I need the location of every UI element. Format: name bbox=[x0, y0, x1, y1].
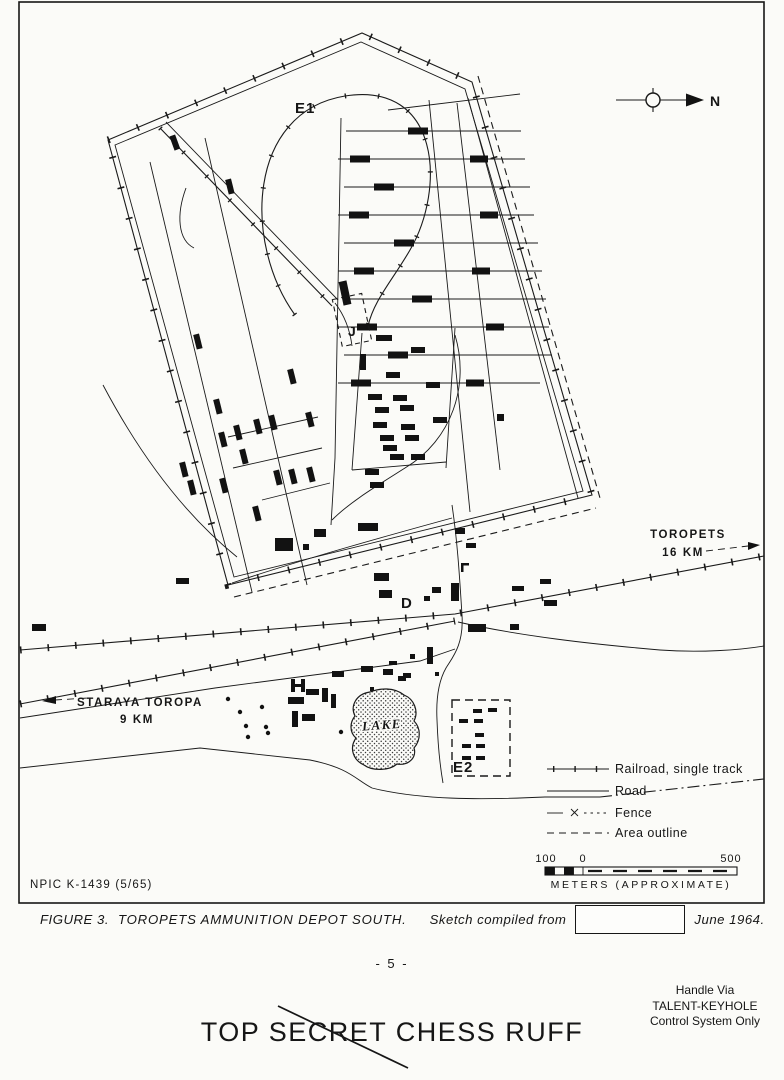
figure-date: June 1964. bbox=[694, 912, 764, 927]
direction-staraya-distance: 9 KM bbox=[120, 714, 154, 726]
area-label-d: D bbox=[401, 595, 413, 612]
area-label-e2: E2 bbox=[453, 759, 473, 776]
depot-internal-lines bbox=[103, 94, 578, 592]
legend-label-railroad: Railroad, single track bbox=[615, 762, 743, 776]
lake-label: LAKE bbox=[361, 716, 403, 734]
figure-title: TOROPETS AMMUNITION DEPOT SOUTH. bbox=[118, 912, 407, 927]
legend-fence-symbol bbox=[547, 809, 606, 816]
legend-label-road: Road bbox=[615, 784, 647, 798]
scale-units-label: METERS (APPROXIMATE) bbox=[551, 879, 732, 891]
page-number: - 5 - bbox=[348, 956, 436, 971]
north-arrow-icon bbox=[616, 88, 704, 112]
redaction-box bbox=[575, 905, 685, 934]
north-label: N bbox=[710, 93, 721, 109]
storage-grid-buildings bbox=[360, 335, 504, 488]
legend: Railroad, single track Road Fence Area o… bbox=[547, 762, 743, 840]
legend-label-fence: Fence bbox=[615, 806, 652, 820]
direction-toropets-name: TOROPETS bbox=[650, 529, 726, 541]
credit-label: NPIC K-1439 (5/65) bbox=[30, 879, 153, 891]
figure-caption: FIGURE 3. TOROPETS AMMUNITION DEPOT SOUT… bbox=[40, 905, 774, 934]
scale-bar: 100 0 500 METERS (APPROXIMATE) bbox=[535, 853, 741, 891]
handling-line-2: TALENT-KEYHOLE bbox=[626, 999, 784, 1015]
scale-zero-value: 0 bbox=[579, 853, 586, 865]
railroad-lines bbox=[20, 556, 764, 704]
scale-left-value: 100 bbox=[535, 853, 556, 865]
depot-fence bbox=[108, 33, 600, 597]
west-area-buildings bbox=[169, 134, 315, 521]
classification-banner: TOP SECRET CHESS RUFF bbox=[0, 1017, 784, 1048]
figure-note: Sketch compiled from bbox=[430, 912, 567, 927]
handling-line-1: Handle Via bbox=[626, 983, 784, 999]
legend-label-area-outline: Area outline bbox=[615, 826, 688, 840]
figure-number: FIGURE 3. bbox=[40, 912, 109, 927]
area-label-j: J bbox=[348, 323, 357, 339]
area-label-e1: E1 bbox=[295, 100, 315, 117]
south-buildings bbox=[32, 523, 557, 632]
direction-staraya-name: STARAYA TOROPA bbox=[77, 697, 203, 709]
direction-toropets-distance: 16 KM bbox=[662, 547, 704, 559]
scale-right-value: 500 bbox=[720, 853, 741, 865]
